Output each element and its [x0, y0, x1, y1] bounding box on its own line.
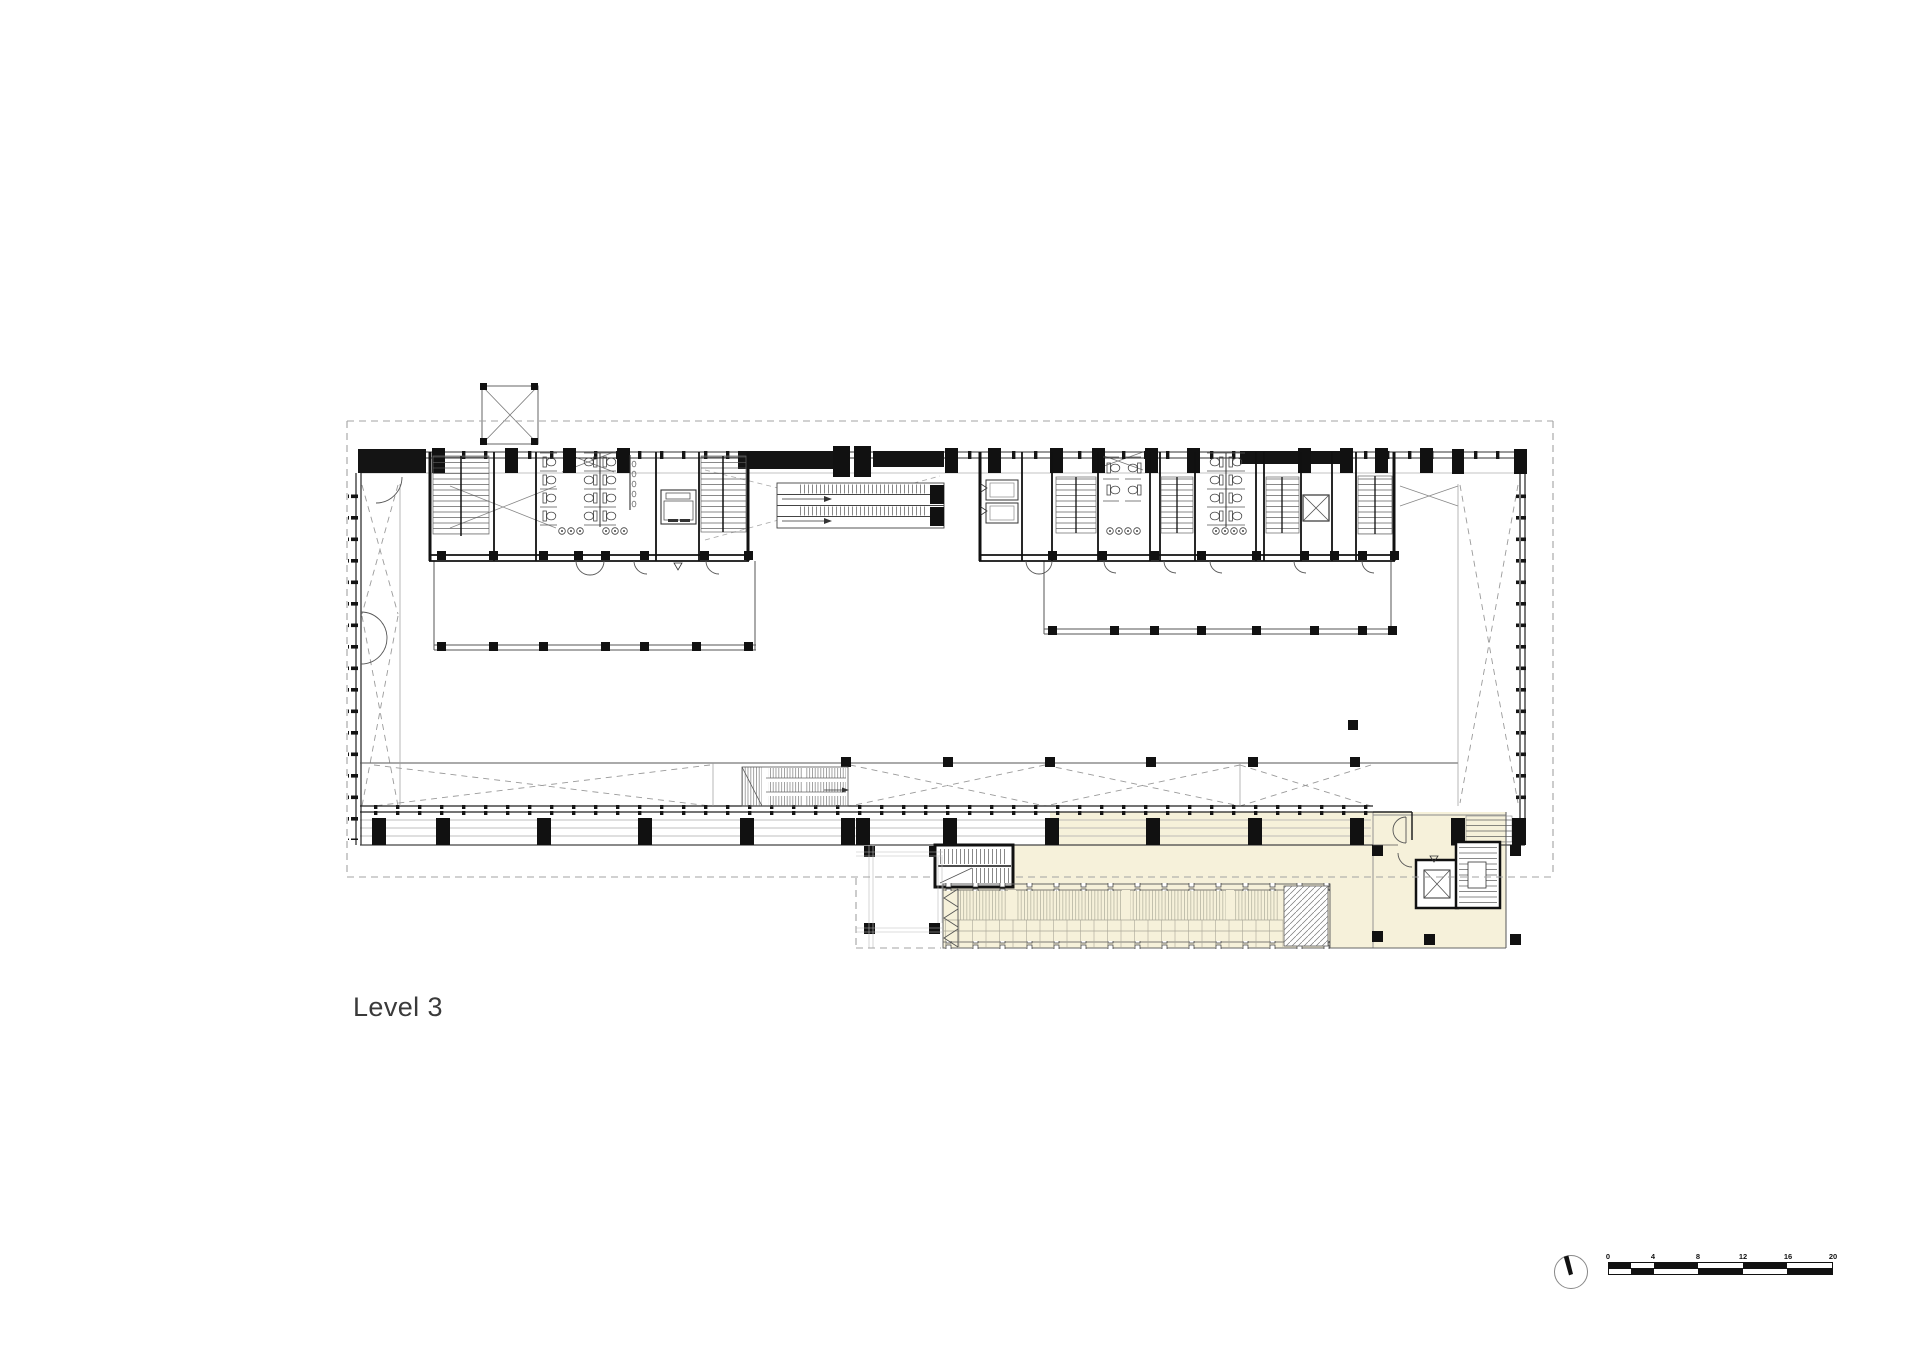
north-arrow-icon	[1549, 1247, 1593, 1293]
scale-tick-label: 0	[1606, 1252, 1610, 1261]
core-left	[429, 452, 753, 651]
scale-tick-label: 12	[1739, 1252, 1747, 1261]
scale-bar-labels: 0 4 8 12 16 20	[1608, 1252, 1833, 1261]
floor-plan-drawing	[0, 0, 1920, 1357]
scale-bar: 0 4 8 12 16 20	[1608, 1252, 1833, 1275]
scale-bar-graphic	[1608, 1262, 1833, 1275]
floor-plan-sheet: Level 3 0 4 8 12 16 20	[0, 0, 1920, 1357]
escalators	[777, 483, 944, 528]
level-label: Level 3	[353, 992, 443, 1023]
scale-tick-label: 16	[1784, 1252, 1792, 1261]
core-right	[979, 452, 1399, 635]
scale-tick-label: 4	[1651, 1252, 1655, 1261]
scale-tick-label: 20	[1829, 1252, 1837, 1261]
rooftop-x-box	[480, 383, 538, 445]
stepped-seating-stair	[742, 767, 849, 806]
scale-tick-label: 8	[1696, 1252, 1700, 1261]
